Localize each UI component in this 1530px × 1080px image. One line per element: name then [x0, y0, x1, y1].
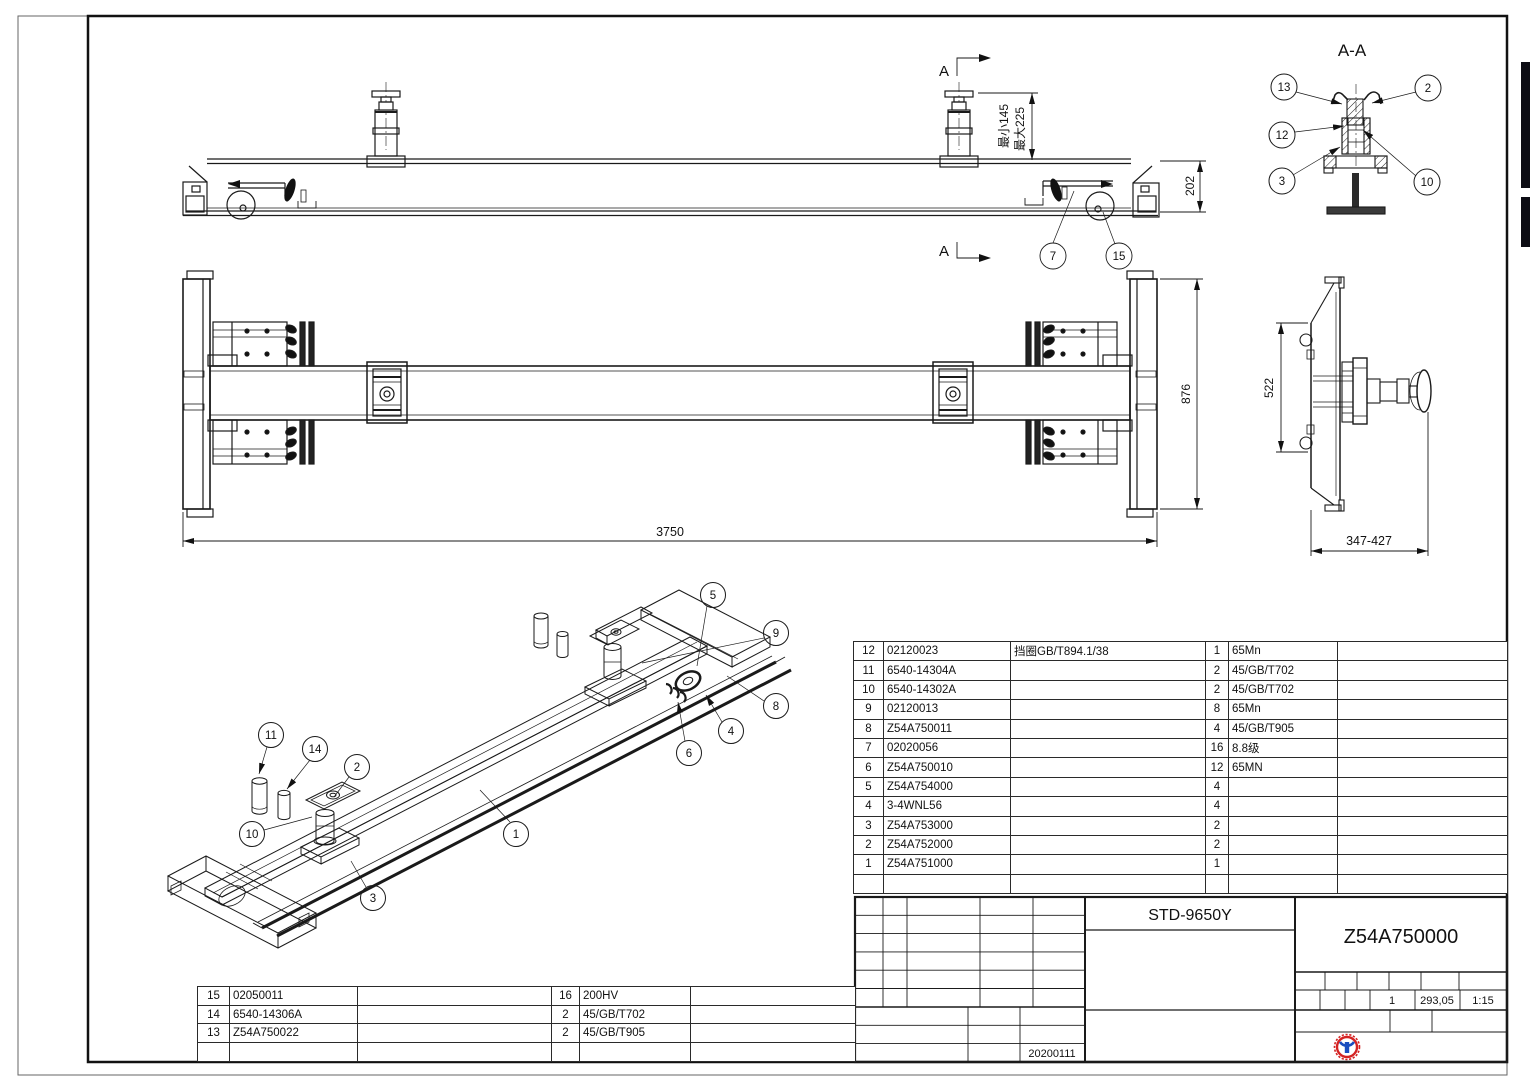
- bom-remark: [1338, 661, 1508, 680]
- dim-plate-height: 876: [1179, 384, 1193, 404]
- bom-no: 9: [854, 700, 884, 719]
- bom-no: 13: [198, 1024, 230, 1043]
- callout-3: 3: [1279, 176, 1285, 188]
- bom-row: 146540-14306A245/GB/T702: [198, 1005, 856, 1024]
- bom-remark: [1338, 680, 1508, 699]
- bom-qty: 16: [1206, 738, 1229, 757]
- bom-no: 11: [854, 661, 884, 680]
- bom-material: [1229, 816, 1338, 835]
- bom-part: 6540-14302A: [884, 680, 1011, 699]
- section-title: A-A: [1338, 41, 1367, 60]
- bom-row: 902120013865Mn: [854, 700, 1508, 719]
- bom-no: 10: [854, 680, 884, 699]
- callout-12: 12: [1276, 130, 1289, 142]
- bom-no: 1: [854, 855, 884, 874]
- bom-desc: [1011, 719, 1206, 738]
- callout-3b: 3: [370, 893, 376, 905]
- front-view: [183, 271, 1157, 517]
- spring-bracket-left: [213, 322, 314, 464]
- bom-remark: [1338, 816, 1508, 835]
- bom-part: 02020056: [884, 738, 1011, 757]
- bushing-cylinders: [252, 613, 568, 820]
- bom-remark: [1338, 738, 1508, 757]
- bom-desc: [1011, 835, 1206, 854]
- bom-row: 5Z54A7540004: [854, 777, 1508, 796]
- bom-part: Z54A750011: [884, 719, 1011, 738]
- dim-total-length: 3750: [656, 525, 684, 539]
- bom-part: 02120023: [884, 642, 1011, 661]
- drawing-canvas: A A 最小145 最大225 202 7 15: [0, 0, 1530, 1080]
- bom-remark: [1338, 700, 1508, 719]
- bom-material: 45/GB/T702: [580, 1005, 691, 1024]
- bom-row: 1202120023挡圈GB/T894.1/38165Mn: [854, 642, 1508, 661]
- callout-2b: 2: [354, 762, 360, 774]
- bom-desc: [1011, 738, 1206, 757]
- side-view-dims: [1276, 323, 1428, 556]
- bom-qty: 2: [552, 1005, 580, 1024]
- end-support-right: [585, 590, 770, 706]
- bom-no: 8: [854, 719, 884, 738]
- bom-part: 6540-14304A: [884, 661, 1011, 680]
- bom-part: Z54A751000: [884, 855, 1011, 874]
- model-number: STD-9650Y: [1148, 907, 1232, 924]
- bom-part: Z54A750022: [230, 1024, 358, 1043]
- bom-material: [1229, 797, 1338, 816]
- dim-side-width: 347-427: [1346, 534, 1392, 548]
- bom-row: 702020056168.8级: [854, 738, 1508, 757]
- front-view-texts: 876 3750: [656, 384, 1193, 539]
- callout-15: 15: [1113, 251, 1126, 263]
- bom-remark: [691, 1005, 856, 1024]
- bom-material: 65MN: [1229, 758, 1338, 777]
- bom-desc: [1011, 777, 1206, 796]
- bom-material: 45/GB/T905: [1229, 719, 1338, 738]
- bom-remark: [1338, 855, 1508, 874]
- bom-row: 2Z54A7520002: [854, 835, 1508, 854]
- bom-part: Z54A753000: [884, 816, 1011, 835]
- bom-qty: 4: [1206, 719, 1229, 738]
- bom-part: Z54A750010: [884, 758, 1011, 777]
- bom-material: 200HV: [580, 987, 691, 1006]
- front-view-dims: [183, 279, 1203, 547]
- bom-remark: [1338, 797, 1508, 816]
- bom-remark: [691, 987, 856, 1006]
- drawing-number: Z54A750000: [1344, 926, 1459, 948]
- bom-qty: 16: [552, 987, 580, 1006]
- bom-no: 12: [854, 642, 884, 661]
- section-marker-bottom: A: [939, 243, 949, 260]
- bom-remark: [1338, 835, 1508, 854]
- bom-row-empty: [198, 1043, 856, 1062]
- dim-jack-max: 最大225: [1013, 107, 1027, 151]
- iso-callouts: [240, 583, 789, 911]
- bom-desc: [358, 1005, 552, 1024]
- bom-qty: 1: [1206, 855, 1229, 874]
- bom-material: 45/GB/T702: [1229, 661, 1338, 680]
- bom-remark: [1338, 719, 1508, 738]
- section-marker-top: A: [939, 63, 949, 80]
- bom-no: 7: [854, 738, 884, 757]
- bom-qty: 8: [1206, 700, 1229, 719]
- bom-no: 15: [198, 987, 230, 1006]
- bom-remark: [1338, 642, 1508, 661]
- bom-no: 14: [198, 1005, 230, 1024]
- callout-9: 9: [773, 628, 779, 640]
- bom-material: 65Mn: [1229, 642, 1338, 661]
- bom-material: [1229, 855, 1338, 874]
- bom-part: 02050011: [230, 987, 358, 1006]
- bom-qty: 4: [1206, 777, 1229, 796]
- bom-row: 116540-14304A245/GB/T702: [854, 661, 1508, 680]
- spring-bracket-right: [1026, 322, 1117, 464]
- bom-desc: [1011, 758, 1206, 777]
- bom-remark: [1338, 758, 1508, 777]
- section-view: [1324, 84, 1387, 214]
- bom-no: 2: [854, 835, 884, 854]
- bom-no: 5: [854, 777, 884, 796]
- bom-desc: [1011, 700, 1206, 719]
- bom-material: 8.8级: [1229, 738, 1338, 757]
- bom-row: 6Z54A7500101265MN: [854, 758, 1508, 777]
- end-support-left: [168, 856, 316, 948]
- bom-desc: [1011, 855, 1206, 874]
- bom-desc: [1011, 797, 1206, 816]
- scale-value: 1:15: [1472, 995, 1493, 1007]
- bom-qty: 2: [1206, 816, 1229, 835]
- bom-qty: 1: [1206, 642, 1229, 661]
- bom-qty: 12: [1206, 758, 1229, 777]
- company-logo: [1335, 1035, 1360, 1060]
- bom-row: 13Z54A750022245/GB/T905: [198, 1024, 856, 1043]
- bom-table-right: 1202120023挡圈GB/T894.1/38165Mn 116540-143…: [853, 641, 1508, 894]
- callout-5: 5: [710, 590, 716, 602]
- date-value: 20200111: [1028, 1048, 1075, 1060]
- bom-desc: [1011, 680, 1206, 699]
- sheet-number: 1: [1389, 995, 1395, 1007]
- bom-no: 3: [854, 816, 884, 835]
- callout-11: 11: [265, 730, 277, 742]
- bom-row: 8Z54A750011445/GB/T905: [854, 719, 1508, 738]
- iso-view: [168, 583, 791, 949]
- jack-left: [367, 82, 405, 167]
- bom-row: 3Z54A7530002: [854, 816, 1508, 835]
- dim-jack-min: 最小145: [997, 104, 1011, 148]
- bom-part: 3-4WNL56: [884, 797, 1011, 816]
- scan-strip: [1521, 62, 1530, 188]
- callout-13: 13: [1278, 82, 1291, 94]
- bom-material: [1229, 835, 1338, 854]
- bom-material: 45/GB/T702: [1229, 680, 1338, 699]
- callout-8: 8: [773, 701, 779, 713]
- top-view-dims: [957, 54, 1206, 269]
- bom-material: [1229, 777, 1338, 796]
- bom-no: 6: [854, 758, 884, 777]
- bom-material: 45/GB/T905: [580, 1024, 691, 1043]
- callout-2: 2: [1425, 83, 1431, 95]
- callout-10b: 10: [246, 829, 259, 841]
- scan-strip: [1521, 197, 1530, 247]
- iso-callout-texts: 5 9 8 4 6 11 14 2 10 1 3: [246, 590, 780, 905]
- jack-right: [940, 82, 978, 167]
- bom-row-empty: [854, 874, 1508, 893]
- bom-part: 6540-14306A: [230, 1005, 358, 1024]
- bom-desc: [358, 1024, 552, 1043]
- bom-no: 4: [854, 797, 884, 816]
- bom-row: 43-4WNL564: [854, 797, 1508, 816]
- bom-desc: 挡圈GB/T894.1/38: [1011, 642, 1206, 661]
- side-view: [1300, 277, 1431, 511]
- drawing-sheet: A A 最小145 最大225 202 7 15: [0, 0, 1530, 1080]
- dim-beam-height: 202: [1183, 176, 1197, 196]
- weight-value: 293,05: [1420, 995, 1454, 1007]
- callout-7: 7: [1050, 251, 1056, 263]
- bom-row: 1Z54A7510001: [854, 855, 1508, 874]
- bom-part: Z54A754000: [884, 777, 1011, 796]
- bom-material: 65Mn: [1229, 700, 1338, 719]
- bom-qty: 2: [552, 1024, 580, 1043]
- bom-row: 150205001116200HV: [198, 987, 856, 1006]
- callout-1: 1: [513, 829, 519, 841]
- bom-part: Z54A752000: [884, 835, 1011, 854]
- callout-6: 6: [686, 748, 692, 760]
- bom-desc: [358, 987, 552, 1006]
- callout-14: 14: [309, 744, 322, 756]
- bom-desc: [1011, 816, 1206, 835]
- callout-10: 10: [1421, 177, 1434, 189]
- bom-desc: [1011, 661, 1206, 680]
- bom-qty: 2: [1206, 680, 1229, 699]
- bom-part: 02120013: [884, 700, 1011, 719]
- dim-side-height: 522: [1262, 378, 1276, 398]
- bom-table-left: 150205001116200HV 146540-14306A245/GB/T7…: [197, 986, 856, 1062]
- bom-qty: 2: [1206, 835, 1229, 854]
- bom-row: 106540-14302A245/GB/T702: [854, 680, 1508, 699]
- callout-4: 4: [728, 726, 735, 738]
- bom-remark: [1338, 777, 1508, 796]
- bom-qty: 2: [1206, 661, 1229, 680]
- bom-qty: 4: [1206, 797, 1229, 816]
- bom-remark: [691, 1024, 856, 1043]
